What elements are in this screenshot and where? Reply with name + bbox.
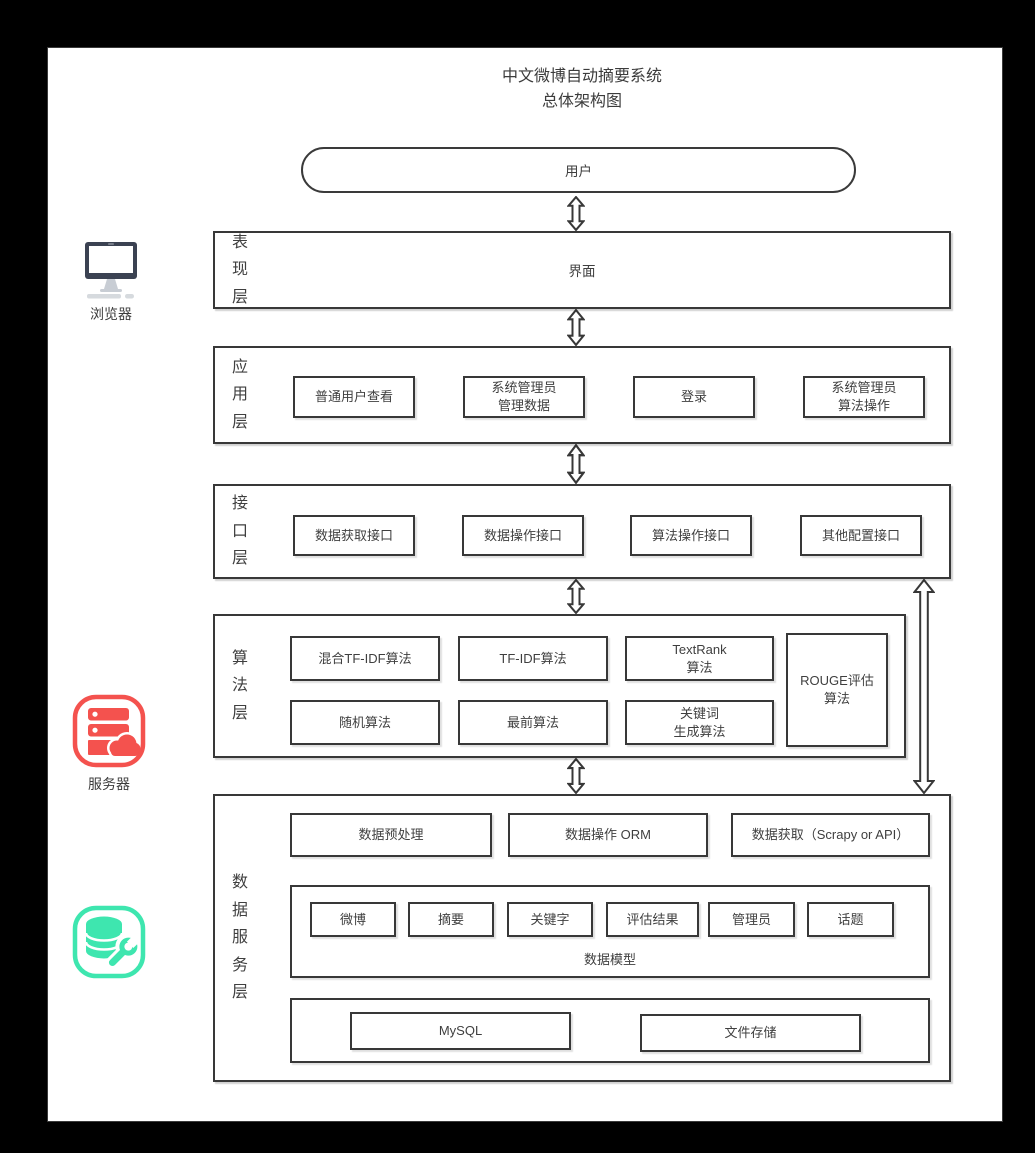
monitor-icon xyxy=(83,241,139,299)
layer-presentation: 表现层 界面 xyxy=(213,231,951,309)
layer-data-service-label: 数据服务层 xyxy=(231,796,249,1080)
node-other-config-api: 其他配置接口 xyxy=(800,515,922,556)
entity-summary: 摘要 xyxy=(408,902,494,937)
node-keyword-generation: 关键词 生成算法 xyxy=(625,700,774,745)
entity-weibo: 微博 xyxy=(310,902,396,937)
node-first-algorithm: 最前算法 xyxy=(458,700,608,745)
node-rouge-evaluation: ROUGE评估 算法 xyxy=(786,633,888,747)
entity-admin: 管理员 xyxy=(708,902,795,937)
double-arrow-icon xyxy=(567,579,585,614)
diagram-title: 中文微博自动摘要系统 总体架构图 xyxy=(213,65,951,115)
double-arrow-icon xyxy=(567,444,585,484)
node-data-fetch-api: 数据获取接口 xyxy=(293,515,415,556)
node-data-ops-orm: 数据操作 ORM xyxy=(508,813,708,857)
node-mysql: MySQL xyxy=(350,1012,571,1050)
node-tfidf: TF-IDF算法 xyxy=(458,636,608,681)
layer-data-service: 数据服务层 数据预处理 数据操作 ORM 数据获取（Scrapy or API）… xyxy=(213,794,951,1082)
node-admin-manage-data: 系统管理员 管理数据 xyxy=(463,376,585,418)
double-arrow-icon xyxy=(567,309,585,346)
node-data-ops-api: 数据操作接口 xyxy=(462,515,584,556)
data-model-label: 数据模型 xyxy=(292,949,928,968)
node-normal-user-view: 普通用户查看 xyxy=(293,376,415,418)
server-cloud-icon xyxy=(71,693,147,769)
node-hybrid-tfidf: 混合TF-IDF算法 xyxy=(290,636,440,681)
layer-algorithm-label: 算法层 xyxy=(231,616,249,756)
entity-keyword: 关键字 xyxy=(507,902,593,937)
server-label: 服务器 xyxy=(71,774,147,794)
node-random-algorithm: 随机算法 xyxy=(290,700,440,745)
title-line-2: 总体架构图 xyxy=(213,90,951,115)
diagram-page: 中文微博自动摘要系统 总体架构图 用户 表现层 界面 应用层 普通用户查看 系统… xyxy=(47,47,1003,1122)
node-algorithm-ops-api: 算法操作接口 xyxy=(630,515,752,556)
entity-evaluation-result: 评估结果 xyxy=(606,902,699,937)
entity-topic: 话题 xyxy=(807,902,894,937)
browser-label: 浏览器 xyxy=(73,304,149,324)
node-data-preprocessing: 数据预处理 xyxy=(290,813,492,857)
title-line-1: 中文微博自动摘要系统 xyxy=(213,65,951,90)
node-login: 登录 xyxy=(633,376,755,418)
double-arrow-icon xyxy=(567,758,585,794)
double-arrow-icon xyxy=(567,196,585,231)
layer-interface: 接口层 数据获取接口 数据操作接口 算法操作接口 其他配置接口 xyxy=(213,484,951,579)
node-textrank: TextRank 算法 xyxy=(625,636,774,681)
storage-container: MySQL 文件存储 xyxy=(290,998,930,1063)
node-file-storage: 文件存储 xyxy=(640,1014,861,1052)
user-node: 用户 xyxy=(301,147,856,193)
layer-application-label: 应用层 xyxy=(231,348,249,442)
layer-algorithm: 算法层 混合TF-IDF算法 TF-IDF算法 TextRank 算法 随机算法… xyxy=(213,614,906,758)
user-node-label: 用户 xyxy=(565,160,592,180)
layer-application: 应用层 普通用户查看 系统管理员 管理数据 登录 系统管理员 算法操作 xyxy=(213,346,951,444)
interface-node: 界面 xyxy=(215,233,949,307)
node-admin-algorithm-ops: 系统管理员 算法操作 xyxy=(803,376,925,418)
database-wrench-icon xyxy=(71,904,147,980)
node-data-fetch-scrapy-api: 数据获取（Scrapy or API） xyxy=(731,813,930,857)
data-model-container: 微博 摘要 关键字 评估结果 管理员 话题 数据模型 xyxy=(290,885,930,978)
long-double-arrow-icon xyxy=(913,579,935,794)
layer-interface-label: 接口层 xyxy=(231,486,249,577)
